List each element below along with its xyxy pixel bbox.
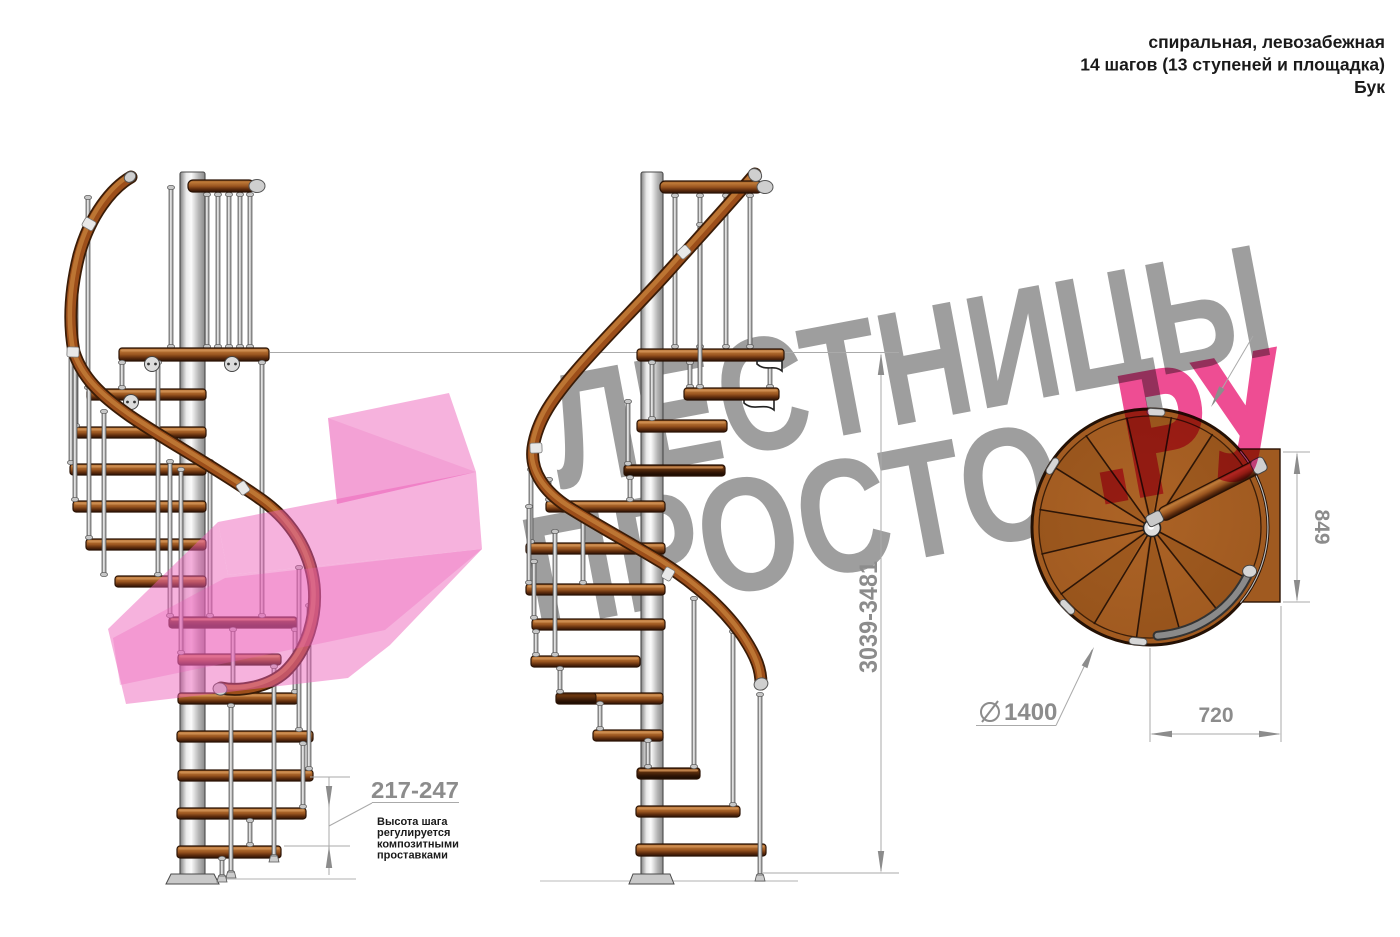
svg-text:3039-3481: 3039-3481 [855,561,883,673]
svg-text:720: 720 [1198,704,1233,727]
svg-text:217-247: 217-247 [371,777,459,803]
svg-text:849: 849 [1310,509,1333,544]
svg-text:14 шагов (13 ступеней и площад: 14 шагов (13 ступеней и площадка) [1080,55,1385,75]
svg-text:.РУ: .РУ [1071,315,1302,538]
svg-text:Высота шагарегулируетсякомпози: Высота шагарегулируетсякомпозитнымипрост… [377,816,459,862]
svg-text:спиральная, левозабежная: спиральная, левозабежная [1148,32,1385,52]
svg-text:1400: 1400 [1004,699,1057,726]
svg-text:Бук: Бук [1354,77,1385,97]
